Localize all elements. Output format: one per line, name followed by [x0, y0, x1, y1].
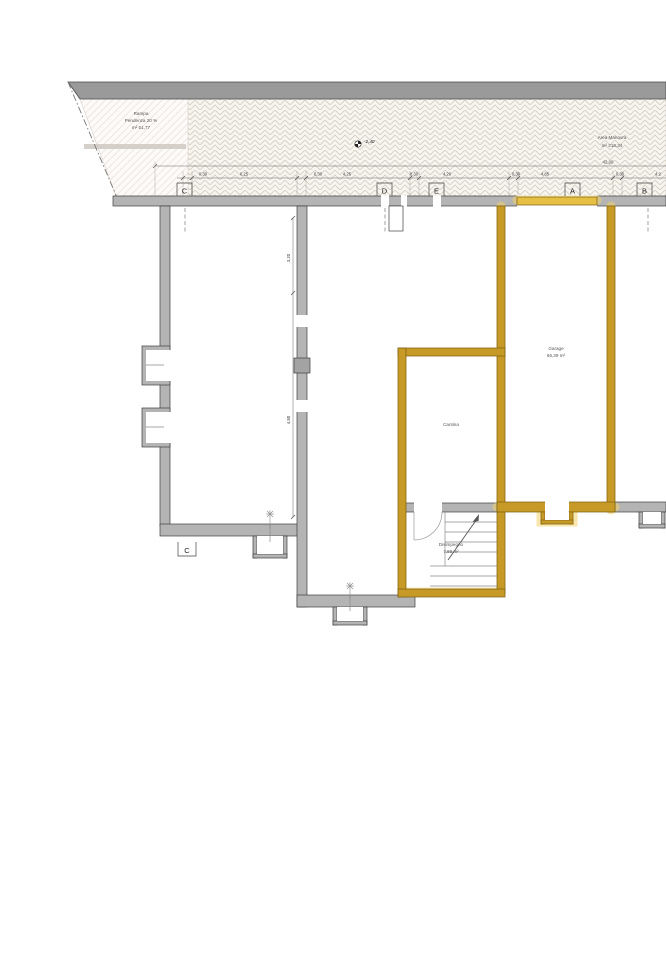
- dim-label: 0,30: [616, 172, 625, 177]
- window-bay: [142, 408, 174, 447]
- disimpegno-bottom-wall: [398, 589, 505, 597]
- section-letter-a: A: [570, 187, 575, 196]
- dim-label: 6,25: [240, 172, 249, 177]
- section-letter-c-bottom: C: [184, 546, 190, 555]
- garage-right-wall: [607, 206, 615, 512]
- garage-door-opening: [517, 197, 597, 205]
- section-letter-d: D: [382, 187, 388, 196]
- left-room-bottom-wall: [160, 524, 305, 536]
- cantina-label: Cantina: [443, 422, 459, 427]
- dim-label-vertical: 4,80: [286, 415, 291, 424]
- dim-label-vertical: 3,20: [286, 253, 291, 262]
- dim-label: 4,2: [655, 172, 662, 177]
- rampa-label: Rampa: [134, 111, 149, 116]
- garage-left-wall: [497, 206, 505, 594]
- window-bay: [142, 346, 174, 385]
- dim-label: 4,85: [541, 172, 550, 177]
- garage-door-recess: [541, 512, 573, 524]
- interior-wall-sill: [294, 358, 310, 373]
- floorplan-svg: C D E A B C Rampa Pendenza 20 % m² 51,77…: [0, 0, 666, 960]
- ramp-edge-band: [84, 144, 186, 149]
- section-letter-b: B: [642, 187, 647, 196]
- dim-label: 4,20: [443, 172, 452, 177]
- overall-dim-label: 42,00: [603, 160, 614, 165]
- disimpegno-area-label: 7,89 m²: [443, 549, 459, 554]
- level-value-label: -2,40: [364, 139, 375, 144]
- area-manovra-area-label: m² 218,34: [602, 143, 623, 148]
- drawing-sheet: C D E A B C Rampa Pendenza 20 % m² 51,77…: [0, 0, 666, 960]
- cantina-top-wall: [398, 348, 505, 356]
- dim-label: 0,30: [199, 172, 208, 177]
- rampa-area-label: m² 51,77: [132, 125, 151, 130]
- lower-bottom-wall: [297, 595, 415, 607]
- manovra-area: [115, 99, 666, 196]
- section-letter-c: C: [182, 187, 188, 196]
- garage-area-label: 66,39 m²: [547, 353, 566, 358]
- section-letter-e: E: [434, 187, 439, 196]
- area-manovra-label: Area Manovra: [598, 135, 627, 140]
- right-wall: [615, 502, 666, 512]
- dim-label: 4,25: [343, 172, 352, 177]
- garage-label: Garage: [548, 346, 564, 351]
- top-wall-pilaster: [389, 206, 403, 231]
- dim-label: 0,30: [410, 172, 419, 177]
- retaining-wall: [68, 82, 666, 99]
- dim-label: 0,30: [512, 172, 521, 177]
- rampa-slope-label: Pendenza 20 %: [125, 118, 157, 123]
- dim-label: 0,30: [314, 172, 323, 177]
- cantina-left-wall: [398, 348, 406, 597]
- level-benchmark-icon: [355, 141, 361, 147]
- window-recess: [639, 512, 665, 528]
- disimpegno-label: Disimpegno: [439, 542, 464, 547]
